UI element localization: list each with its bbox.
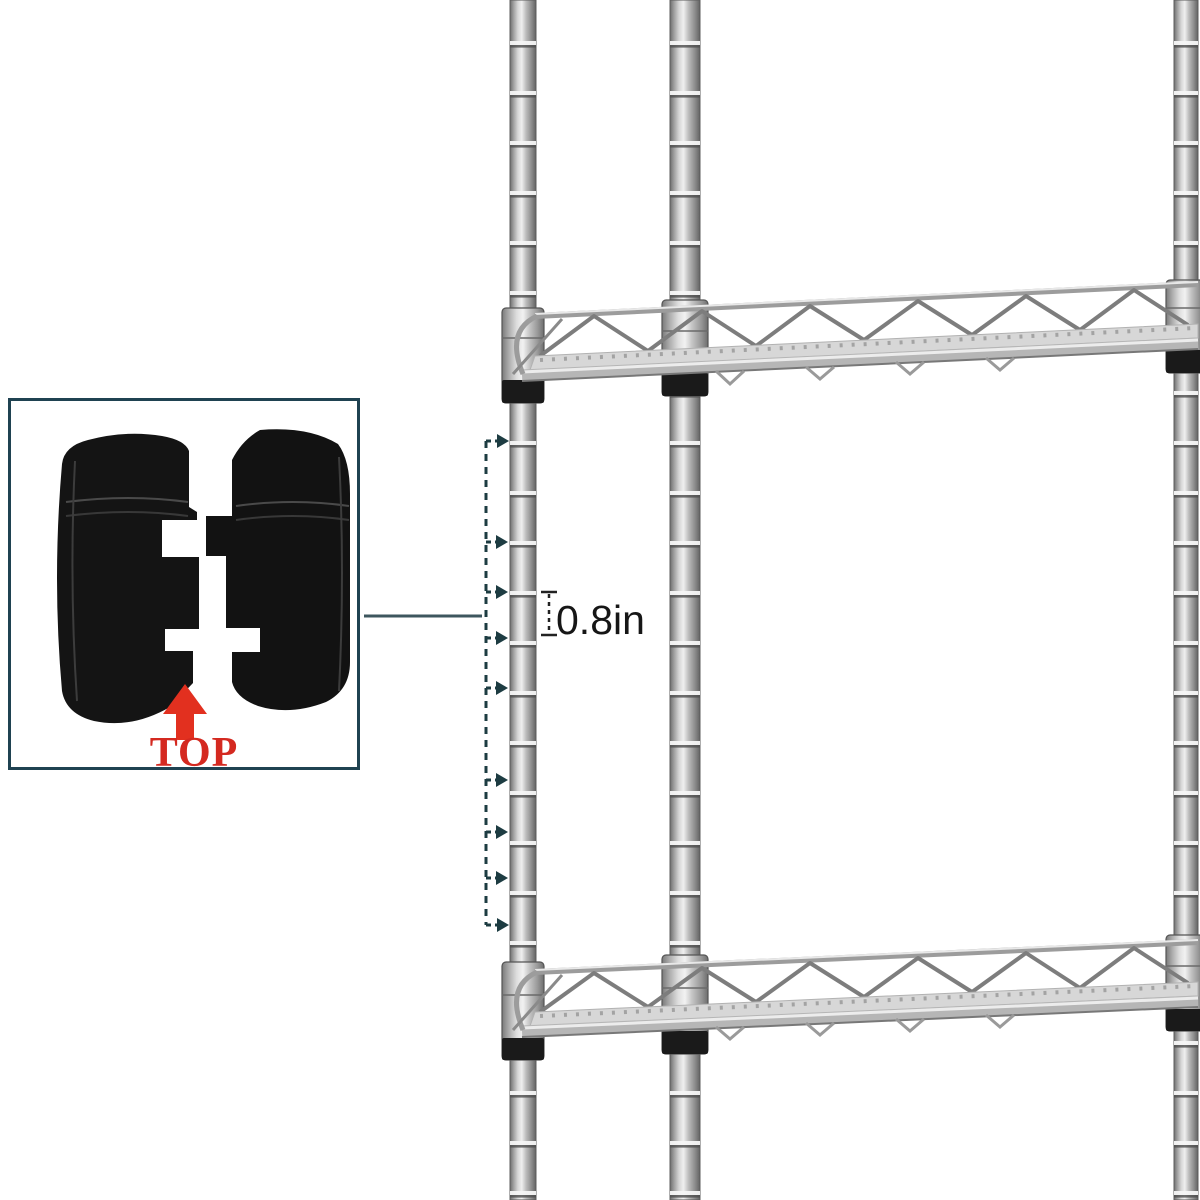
measurement-ticks [486,434,509,932]
tick-arrow [496,773,508,787]
tick-arrow [496,535,508,549]
top-label: TOP [119,729,269,777]
tick-arrow [496,681,508,695]
top-wire-shelf [513,282,1198,384]
tick-arrow [496,825,508,839]
lock-band [1166,1009,1200,1031]
measurement-label: 0.8in [556,597,645,644]
tick-arrow [496,631,508,645]
right-clip-half [206,429,350,710]
lock-band [1166,350,1200,373]
dimension-bracket [541,592,557,635]
callout-box: TOP [8,398,360,770]
tick-arrow [497,434,509,448]
tick-arrow [497,918,509,932]
lock-band [662,373,708,396]
lock-band [502,380,544,403]
lock-band [502,1038,544,1060]
product-annotation-image: TOP 0.8in [0,0,1200,1200]
left-clip-half [57,434,199,723]
tick-arrow [496,871,508,885]
pole-lock-clip-pair-icon [11,401,357,767]
bottom-wire-shelf [513,940,1198,1039]
lock-band [662,1031,708,1054]
tick-arrow [496,585,508,599]
